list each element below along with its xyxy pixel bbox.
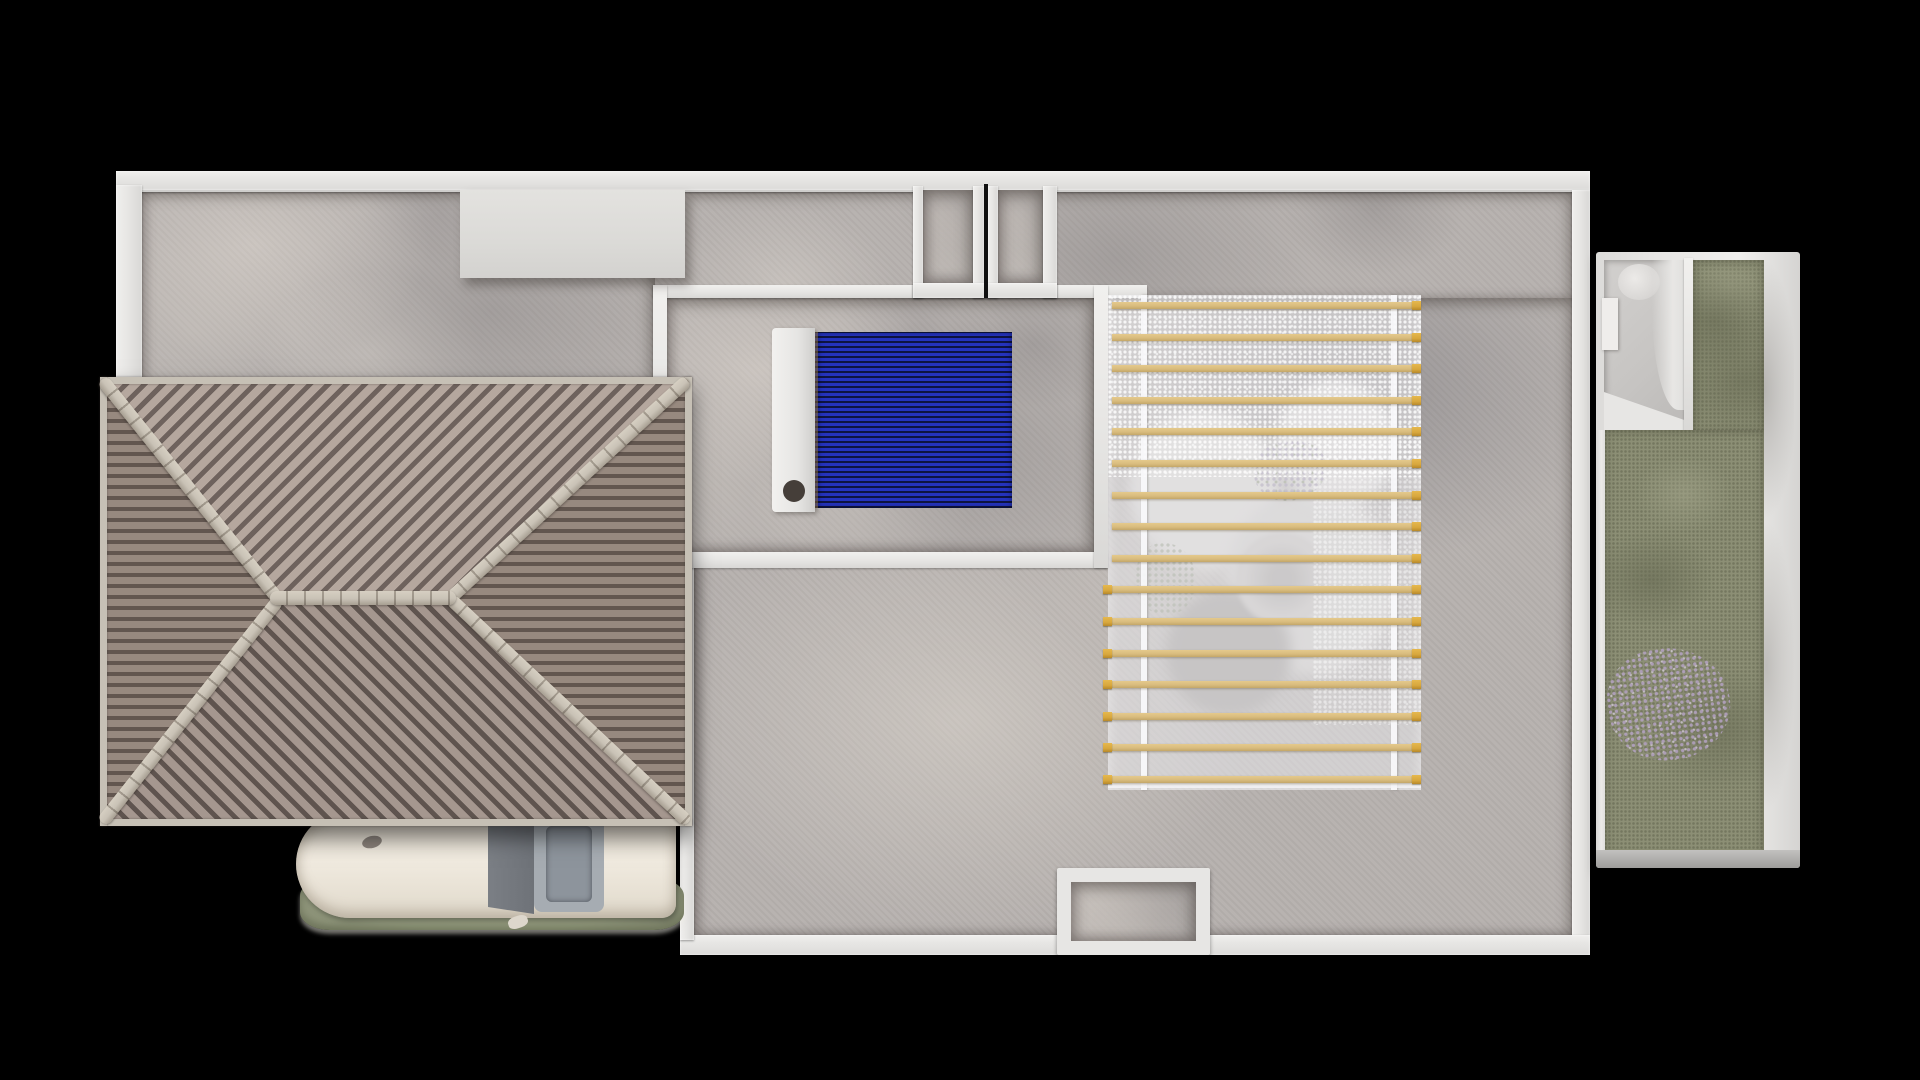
pergola-slat (1112, 460, 1412, 467)
roof-eave-right (685, 377, 692, 826)
annex-left-band (1596, 430, 1605, 858)
pergola-slat (1112, 713, 1412, 720)
solar-room-wall-right (1094, 285, 1108, 568)
pergola-slat-end-cap (1412, 680, 1421, 689)
roof-eave-top (100, 377, 692, 384)
pergola-slat-end-cap (1412, 427, 1421, 436)
stairwell-wall-c (988, 186, 998, 298)
pergola-slat (1112, 334, 1412, 341)
stairwell-wall-d (1043, 186, 1057, 298)
annex-garden-column (1693, 260, 1764, 434)
pergola-slat-end-cap (1412, 396, 1421, 405)
stairwell-gap-seam (984, 184, 988, 298)
pergola-slat (1112, 744, 1412, 751)
hip-roof (100, 377, 692, 826)
stairwell-slot-right (998, 190, 1043, 283)
car-sunroof (546, 826, 592, 902)
pergola-slat-end-cap (1103, 775, 1112, 784)
pergola-slat-end-cap (1412, 617, 1421, 626)
pergola-slat-end-cap (1103, 743, 1112, 752)
stairwell-slot-left (923, 190, 973, 283)
annex-drape-right (1764, 258, 1794, 858)
pergola-slat-end-cap (1412, 364, 1421, 373)
roof-ridge-cap (270, 591, 456, 605)
pergola-slat-end-cap (1412, 743, 1421, 752)
pergola-slat-end-cap (1412, 333, 1421, 342)
roof-eave-bottom (100, 819, 692, 826)
car-body (296, 810, 676, 918)
pergola-slat-end-cap (1412, 775, 1421, 784)
pergola-slat-end-cap (1103, 680, 1112, 689)
pergola-slat (1112, 586, 1412, 593)
pergola-slat (1112, 555, 1412, 562)
pergola-slat-end-cap (1103, 712, 1112, 721)
pergola-slat (1112, 302, 1412, 309)
pergola-slat-end-cap (1412, 522, 1421, 531)
pergola-slats (1108, 295, 1421, 790)
annex-bottom-shadow (1596, 850, 1800, 868)
annex-wall-fixture (1602, 298, 1618, 350)
roof-hatch-floor (1071, 882, 1196, 941)
building-right-wall (1572, 190, 1590, 937)
pergola-slat-end-cap (1103, 585, 1112, 594)
pergola-slat (1112, 365, 1412, 372)
building-top-wall (116, 171, 1590, 192)
pergola-slat (1112, 776, 1412, 783)
pergola-slat (1112, 523, 1412, 530)
pergola-slat-end-cap (1412, 459, 1421, 468)
pergola-slat-end-cap (1103, 617, 1112, 626)
pergola-slat-end-cap (1412, 301, 1421, 310)
pergola-slat-end-cap (1412, 649, 1421, 658)
car-windshield (488, 814, 534, 914)
stairwell-wall-b (973, 186, 984, 298)
scene (0, 0, 1920, 1080)
pergola-slat (1112, 397, 1412, 404)
annex-divider-wall (1684, 258, 1693, 434)
pergola-slat-end-cap (1412, 585, 1421, 594)
garden-annex (1596, 252, 1800, 868)
solar-manifold-port (783, 480, 805, 502)
pergola-slat (1112, 618, 1412, 625)
pergola-slat (1112, 650, 1412, 657)
pergola-slat-end-cap (1412, 554, 1421, 563)
pergola-slat-end-cap (1103, 649, 1112, 658)
pergola-slat (1112, 492, 1412, 499)
pergola-slat-end-cap (1412, 491, 1421, 500)
roof-hatch (1057, 868, 1210, 955)
pergola-slat (1112, 681, 1412, 688)
solar-collector-tubes (815, 332, 1012, 508)
solar-room-wall-bottom (653, 552, 1108, 568)
skylight-block (460, 190, 685, 278)
solar-room-wall-top (653, 285, 1147, 298)
pergola (1108, 295, 1421, 790)
building-left-wall (116, 185, 142, 385)
stairwell-wall-a (913, 186, 923, 298)
annex-garden-main (1604, 430, 1764, 858)
pergola-slat (1112, 428, 1412, 435)
pergola-slat-end-cap (1412, 712, 1421, 721)
roof-eave-left (100, 377, 107, 826)
